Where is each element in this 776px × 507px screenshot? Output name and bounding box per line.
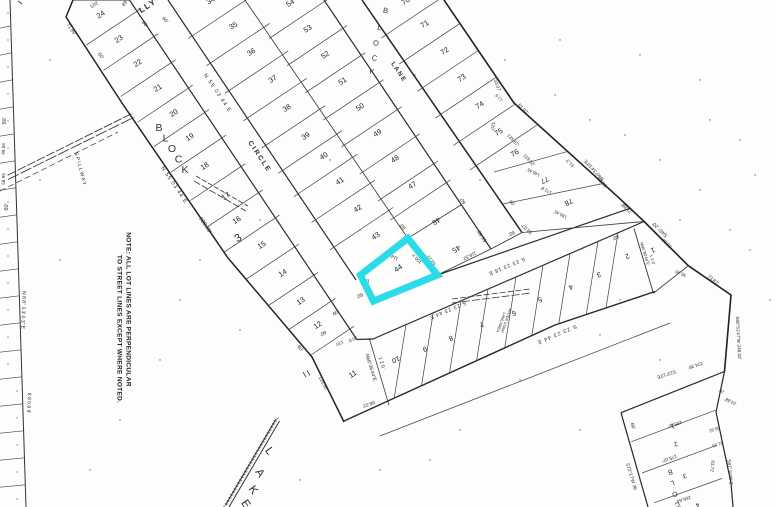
svg-text:58.95: 58.95 xyxy=(1,173,6,185)
svg-text:50': 50' xyxy=(2,117,8,124)
svg-text:60': 60' xyxy=(4,203,10,210)
svg-text:8 8 0.9 9': 8 8 0.9 9' xyxy=(25,393,32,414)
svg-text:63.72: 63.72 xyxy=(709,460,715,472)
svg-text:49.56: 49.56 xyxy=(1,143,6,155)
svg-text:TO STREET LINES EXCEPT WHERE N: TO STREET LINES EXCEPT WHERE NOTED. xyxy=(116,255,123,403)
svg-text:NOTE: ALL LOT LINES ARE P: NOTE: ALL LOT LINES ARE PERPENDICULAR xyxy=(125,232,132,386)
svg-text:B: B xyxy=(155,122,162,134)
svg-text:K: K xyxy=(181,164,188,176)
